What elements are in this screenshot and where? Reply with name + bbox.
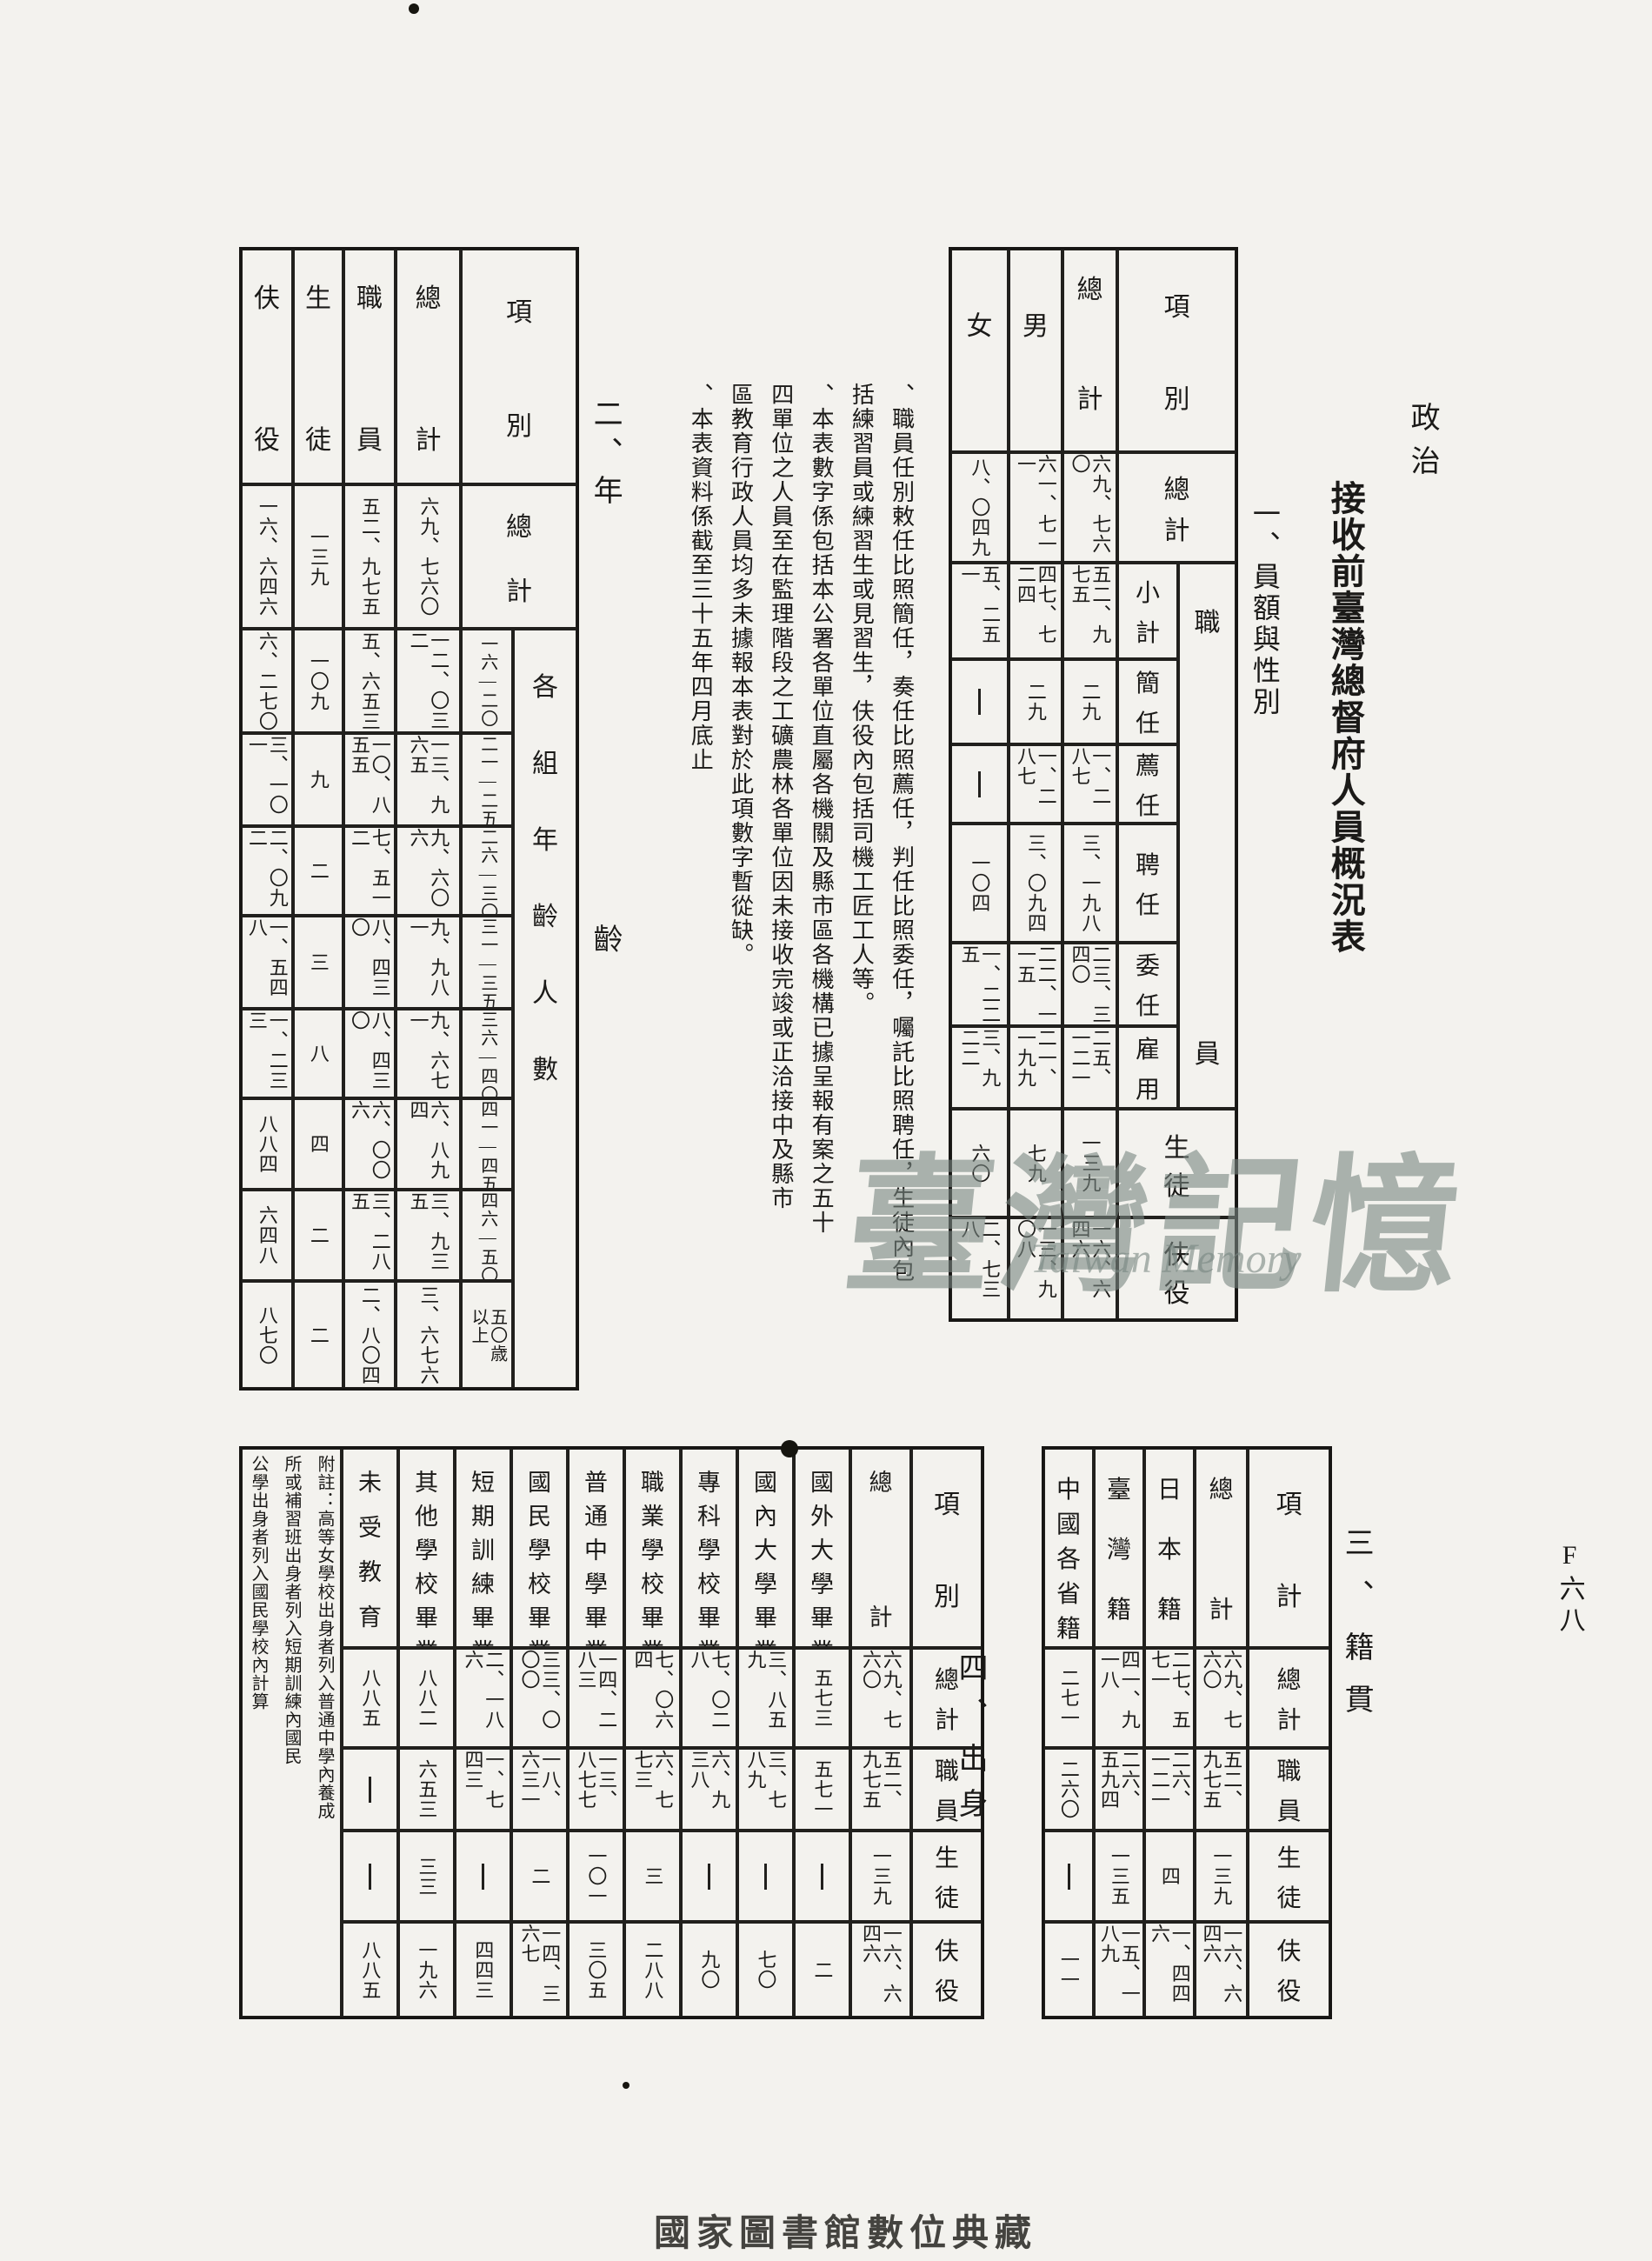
t1-col-header-label: 總計 bbox=[1077, 250, 1103, 450]
t1-rowheader-1-label: 小計 bbox=[1136, 564, 1160, 657]
t3-cell-r2-c2: 四 bbox=[1144, 1831, 1195, 1922]
t4-cell-r1-c7-value: 三、七八九 bbox=[745, 1750, 787, 1829]
t2-rowheader-5: 三六—四〇 bbox=[461, 1009, 513, 1098]
t4-col-header-label: 其他學校畢業 bbox=[415, 1450, 438, 1646]
t4-cell-r0-c5: 七、〇六四 bbox=[624, 1648, 681, 1748]
t1-col-header: 男 bbox=[1009, 249, 1062, 452]
t1-group-shokuin-label: 職員 bbox=[1195, 564, 1221, 1107]
t3-cell-r0-c1-value: 四一、九一八 bbox=[1098, 1650, 1140, 1746]
t2-cell-r7-c0: 六四八 bbox=[241, 1190, 293, 1281]
t3-cell-r2-c1: 一三五 bbox=[1094, 1831, 1144, 1922]
t4-cell-r3-c1-value: 一九六 bbox=[416, 1940, 437, 2000]
section-title-personnel: 一、員額與性別 bbox=[1249, 499, 1280, 718]
t2-col-header: 總計 bbox=[396, 249, 461, 484]
t2-cell-r4-c0: 一、五四八 bbox=[241, 916, 293, 1009]
t4-cell-r3-c6: 九〇 bbox=[681, 1922, 737, 2018]
t4-rowheader-0: 總計 bbox=[911, 1648, 983, 1748]
t4-rowheader-2: 生徒 bbox=[911, 1831, 983, 1922]
t1-cell-r3-c2: 一、二八七 bbox=[1062, 744, 1117, 824]
t3-cell-r2-c3: 一三九 bbox=[1195, 1831, 1248, 1922]
t1-cell-r4-c2-value: 三、一九八 bbox=[1080, 833, 1101, 933]
t3-cell-r2-c2-value: 四 bbox=[1159, 1866, 1180, 1886]
t4-cell-r3-c3-value: 一四、三六七 bbox=[519, 1924, 561, 2016]
t2-cell-r6-c2: 六、〇〇六 bbox=[343, 1098, 396, 1190]
t1-cell-r2-c1: 二九 bbox=[1009, 659, 1062, 744]
t3-cell-r0-c2: 二七、五七一 bbox=[1144, 1648, 1195, 1748]
t4-col-header-label: 職業學校畢業 bbox=[641, 1450, 664, 1646]
t1-cell-r6-c1: 二一、一九九 bbox=[1009, 1026, 1062, 1109]
t2-cell-r4-c3: 九、九八一 bbox=[396, 916, 461, 1009]
t2-cell-r0-c3-value: 六九、七六〇 bbox=[418, 497, 439, 617]
t2-cell-r3-c3: 九、六〇六 bbox=[396, 826, 461, 916]
t1-cell-r0-c0: 八、〇四九 bbox=[950, 452, 1009, 563]
t4-cell-r2-c4-value: 一〇一 bbox=[586, 1846, 607, 1906]
t4-cell-r2-c9-value: 一三九 bbox=[870, 1846, 891, 1906]
empty-value-dash bbox=[369, 1777, 371, 1803]
t3-rowheader-1: 職員 bbox=[1248, 1748, 1330, 1831]
t2-cell-r5-c3: 九、六七一 bbox=[396, 1009, 461, 1098]
t2-corner-xiangbie-label: 項別 bbox=[506, 250, 532, 483]
t2-cell-r8-c2-value: 二、八〇四 bbox=[359, 1285, 380, 1385]
empty-value-dash bbox=[708, 1864, 710, 1890]
page-title: 接收前臺灣總督府人員概況表 bbox=[1325, 480, 1364, 955]
t4-cell-r2-c0 bbox=[342, 1831, 398, 1922]
empty-value-dash bbox=[978, 689, 981, 715]
t4-cell-r1-c3: 一八、六三一 bbox=[511, 1748, 568, 1831]
t1-cell-r1-c2-value: 五二、九七五 bbox=[1069, 564, 1111, 657]
t2-rowheader-6-label: 四一—四五 bbox=[477, 1100, 496, 1188]
t4-cell-r0-c4-value: 一四、二八三 bbox=[576, 1650, 617, 1746]
t4-cell-r3-c2-value: 四四三 bbox=[473, 1940, 494, 2000]
t3-col-header-label: 臺灣籍 bbox=[1107, 1450, 1131, 1646]
t4-col-header: 國內大學畢業 bbox=[737, 1448, 794, 1648]
t3-cell-r1-c2: 二六、一二一 bbox=[1144, 1748, 1195, 1831]
t4-cell-r1-c8-value: 五七一 bbox=[812, 1759, 833, 1819]
footer-library-caption: 國家圖書館數位典藏 bbox=[654, 2204, 1037, 2257]
t4-col-header-label: 專科學校畢業 bbox=[697, 1450, 721, 1646]
t2-cell-r0-c0-value: 一六、六四六 bbox=[256, 497, 277, 617]
t4-col-header: 其他學校畢業 bbox=[398, 1448, 455, 1648]
t3-col-header-label: 日本籍 bbox=[1157, 1450, 1182, 1646]
t1-cell-r7-c2: 一三九 bbox=[1062, 1109, 1117, 1217]
t4-cell-r3-c9: 一六、六四六 bbox=[850, 1922, 911, 2018]
t4-col-header: 專科學校畢業 bbox=[681, 1448, 737, 1648]
t4-col-header-label: 國民學校畢業 bbox=[528, 1450, 551, 1646]
t3-col-header-label: 總計 bbox=[1209, 1450, 1233, 1646]
t3-cell-r3-c2-value: 一、四四六 bbox=[1149, 1924, 1190, 2016]
t1-cell-r5-c0: 一、二二五 bbox=[950, 943, 1009, 1026]
t3-cell-r1-c0-value: 二六〇 bbox=[1058, 1759, 1079, 1819]
t3-cell-r1-c1: 二六、五九四 bbox=[1094, 1748, 1144, 1831]
t2-cell-r1-c1-value: 一〇九 bbox=[308, 651, 329, 711]
t3-cell-r1-c3: 五二、九七五 bbox=[1195, 1748, 1248, 1831]
t4-cell-r0-c3-value: 三三、〇〇〇 bbox=[519, 1650, 561, 1746]
t4-note-column: 附註：高等女學校出身者列入普通中學內養成 所或補習班出身者列入短期訓練內國民 公… bbox=[241, 1448, 342, 2018]
t4-cell-r0-c1-value: 八八二 bbox=[416, 1668, 437, 1728]
empty-value-dash bbox=[1068, 1864, 1070, 1890]
t1-cell-r6-c2-value: 二五、一二一 bbox=[1069, 1028, 1111, 1107]
t4-col-header-label: 未受教育 bbox=[358, 1450, 382, 1646]
t3-cell-r2-c1-value: 一三五 bbox=[1109, 1846, 1129, 1906]
t2-rowheader-2-label: 二一—二五 bbox=[477, 735, 496, 824]
t2-cell-r3-c0-value: 二、〇九二 bbox=[246, 828, 288, 914]
t1-cell-r1-c1-value: 四七、七二四 bbox=[1015, 564, 1056, 657]
t2-rowheader-1-label: 一六—二〇 bbox=[477, 635, 496, 728]
t2-cell-r5-c2-value: 八、四三〇 bbox=[349, 1010, 390, 1097]
t1-cell-r2-c2-value: 二九 bbox=[1080, 682, 1101, 722]
t3-rowheader-3: 伕役 bbox=[1248, 1922, 1330, 2018]
t4-cell-r2-c9: 一三九 bbox=[850, 1831, 911, 1922]
t1-cell-r1-c0: 五、二五一 bbox=[950, 563, 1009, 659]
t2-corner-xiangbie: 項別 bbox=[461, 249, 577, 484]
t1-cell-r7-c2-value: 一三九 bbox=[1080, 1133, 1101, 1193]
t2-cell-r7-c3-value: 三、九三五 bbox=[408, 1191, 450, 1279]
t4-rowheader-2-label: 生徒 bbox=[935, 1832, 959, 1920]
t2-cell-r8-c0: 八七〇 bbox=[241, 1281, 293, 1389]
t2-cell-r8-c2: 二、八〇四 bbox=[343, 1281, 396, 1389]
t1-cell-r5-c1-value: 二二、一一五 bbox=[1015, 944, 1056, 1024]
t2-cell-r2-c0: 三、一〇一 bbox=[241, 733, 293, 826]
t4-cell-r0-c1: 八八二 bbox=[398, 1648, 455, 1748]
t4-cell-r1-c8: 五七一 bbox=[794, 1748, 850, 1831]
t2-rowheader-6: 四一—四五 bbox=[461, 1098, 513, 1190]
t2-col-header: 生徒 bbox=[293, 249, 343, 484]
t1-cell-r5-c2: 二三、三四〇 bbox=[1062, 943, 1117, 1026]
t2-cell-r1-c0-value: 六、二七〇 bbox=[256, 631, 277, 731]
t2-rowheader-total-label: 總計 bbox=[506, 486, 532, 627]
t1-cell-r0-c0-value: 八、〇四九 bbox=[969, 457, 990, 557]
t4-cell-r3-c5-value: 二八八 bbox=[643, 1940, 663, 2000]
t2-cell-r2-c1: 九 bbox=[293, 733, 343, 826]
t3-rowheader-3-label: 伕役 bbox=[1276, 1924, 1301, 2016]
t2-cell-r3-c1-value: 二 bbox=[308, 861, 329, 881]
t2-cell-r8-c3-value: 三、六七六 bbox=[418, 1285, 439, 1385]
t1-col-header: 女 bbox=[950, 249, 1009, 452]
t3-col-header-label: 中國各省籍 bbox=[1056, 1450, 1081, 1646]
t4-col-header-label: 短期訓練畢業 bbox=[471, 1450, 495, 1646]
t2-cell-r6-c0-value: 八八四 bbox=[256, 1114, 277, 1174]
empty-value-dash bbox=[482, 1864, 484, 1890]
t4-note-text: 附註：高等女學校出身者列入普通中學內養成 所或補習班出身者列入短期訓練內國民 公… bbox=[242, 1450, 341, 1820]
t4-corner-xiangbie-label: 項別 bbox=[934, 1450, 960, 1646]
t4-col-header: 未受教育 bbox=[342, 1448, 398, 1648]
t2-cell-r4-c2-value: 八、四三〇 bbox=[349, 917, 390, 1007]
t2-cell-r4-c0-value: 一、五四八 bbox=[246, 917, 288, 1007]
t2-col-header: 伕役 bbox=[241, 249, 293, 484]
t2-rowheader-7-label: 四六—五〇 bbox=[477, 1191, 496, 1279]
t4-col-header: 國民學校畢業 bbox=[511, 1448, 568, 1648]
t1-cell-r6-c0: 三、九二二 bbox=[950, 1026, 1009, 1109]
t1-cell-r4-c0: 一〇四 bbox=[950, 824, 1009, 943]
t2-cell-r3-c3-value: 九、六〇六 bbox=[408, 828, 450, 914]
t3-cell-r3-c0: 一一 bbox=[1043, 1922, 1094, 2018]
t4-cell-r3-c7: 七〇 bbox=[737, 1922, 794, 2018]
t4-cell-r0-c6-value: 七、〇二八 bbox=[689, 1650, 730, 1746]
t3-cell-r1-c1-value: 二六、五九四 bbox=[1098, 1750, 1140, 1829]
t4-cell-r0-c2-value: 二、一八六 bbox=[463, 1650, 504, 1746]
t4-cell-r3-c0-value: 八八五 bbox=[360, 1940, 381, 2000]
t1-cell-r1-c0-value: 五、二五一 bbox=[959, 564, 1001, 657]
notes-block: 、職員任別敕任比照簡任，奏任比照薦任，判任比照委任，囑託比照聘任，生徒內包 括練… bbox=[680, 383, 922, 1165]
t1-rowheader-5-label: 委任 bbox=[1136, 944, 1160, 1024]
t2-cell-r4-c2: 八、四三〇 bbox=[343, 916, 396, 1009]
t3-cell-r3-c0-value: 一一 bbox=[1058, 1950, 1079, 1990]
t2-cell-r2-c3: 一三、九六五 bbox=[396, 733, 461, 826]
t1-cell-r4-c2: 三、一九八 bbox=[1062, 824, 1117, 943]
t2-cell-r4-c1: 三 bbox=[293, 916, 343, 1009]
t1-rowheader-1: 小計 bbox=[1117, 563, 1178, 659]
t4-cell-r0-c7-value: 三、八五九 bbox=[745, 1650, 787, 1746]
t4-col-header-label: 普通中學畢業 bbox=[584, 1450, 608, 1646]
t4-cell-r1-c6: 六、九三八 bbox=[681, 1748, 737, 1831]
t4-cell-r2-c8 bbox=[794, 1831, 850, 1922]
t4-cell-r0-c5-value: 七、〇六四 bbox=[632, 1650, 674, 1746]
section-title-age-part2: 齡 bbox=[588, 924, 621, 953]
section-title-origin: 三、籍貫 bbox=[1339, 1527, 1372, 1736]
t2-cell-r4-c3-value: 九、九八一 bbox=[408, 917, 450, 1007]
t4-cell-r3-c4: 三〇五 bbox=[568, 1922, 624, 2018]
t3-col-header: 臺灣籍 bbox=[1094, 1448, 1144, 1648]
t2-cell-r5-c1-value: 八 bbox=[308, 1044, 329, 1064]
t1-cell-r5-c1: 二二、一一五 bbox=[1009, 943, 1062, 1026]
t2-cell-r1-c1: 一〇九 bbox=[293, 629, 343, 733]
t1-rowheader-3-label: 薦任 bbox=[1136, 746, 1160, 822]
t1-cell-r3-c2-value: 一、二八七 bbox=[1069, 746, 1111, 822]
t2-cell-r0-c2: 五二、九七五 bbox=[343, 484, 396, 629]
t1-rowheader-seito-label: 生徒 bbox=[1164, 1110, 1190, 1216]
t3-cell-r3-c3: 一六、六四六 bbox=[1195, 1922, 1248, 2018]
t4-cell-r3-c4-value: 三〇五 bbox=[586, 1940, 607, 2000]
t4-cell-r3-c5: 二八八 bbox=[624, 1922, 681, 2018]
t1-cell-r0-c2: 六九、七六〇 bbox=[1062, 452, 1117, 563]
t3-cell-r3-c1: 一五、一八九 bbox=[1094, 1922, 1144, 2018]
t4-cell-r2-c3-value: 二 bbox=[530, 1866, 550, 1886]
t4-cell-r3-c3: 一四、三六七 bbox=[511, 1922, 568, 2018]
t4-cell-r3-c6-value: 九〇 bbox=[699, 1950, 720, 1990]
t4-cell-r1-c4-value: 一三、八七七 bbox=[576, 1750, 617, 1829]
t4-cell-r1-c2: 一、七四三 bbox=[455, 1748, 511, 1831]
t4-cell-r1-c1: 六五三 bbox=[398, 1748, 455, 1831]
t1-cell-r8-c2: 一六、六四六 bbox=[1062, 1217, 1117, 1320]
t1-cell-r0-c1: 六一、七一一 bbox=[1009, 452, 1062, 563]
t2-rowheader-4: 三一—三五 bbox=[461, 916, 513, 1009]
t1-col-header: 總計 bbox=[1062, 249, 1117, 452]
t4-rowheader-3: 伕役 bbox=[911, 1922, 983, 2018]
t2-cell-r8-c3: 三、六七六 bbox=[396, 1281, 461, 1389]
t1-rowheader-2-label: 簡任 bbox=[1136, 661, 1160, 743]
t1-cell-r2-c0 bbox=[950, 659, 1009, 744]
t2-cell-r2-c3-value: 一三、九六五 bbox=[408, 735, 450, 824]
t1-rowheader-2: 簡任 bbox=[1117, 659, 1178, 744]
t1-cell-r5-c0-value: 一、二二五 bbox=[959, 944, 1001, 1024]
t2-cell-r1-c3: 一二、〇三二 bbox=[396, 629, 461, 733]
t2-cell-r0-c2-value: 五二、九七五 bbox=[359, 497, 380, 617]
t2-rowheader-8-label: 五〇歳 以上 bbox=[468, 1308, 505, 1363]
t4-rowheader-1: 職員 bbox=[911, 1748, 983, 1831]
t1-cell-r7-c0-value: 六〇 bbox=[969, 1144, 990, 1184]
t2-cell-r3-c1: 二 bbox=[293, 826, 343, 916]
t3-cell-r3-c2: 一、四四六 bbox=[1144, 1922, 1195, 2018]
scan-artifact-dot bbox=[623, 2082, 629, 2089]
t3-cell-r3-c3-value: 一六、六四六 bbox=[1201, 1924, 1242, 2016]
t1-cell-r8-c1-value: 一三、九〇八 bbox=[1015, 1219, 1056, 1318]
category-label: 政治 bbox=[1405, 402, 1438, 489]
t1-cell-r3-c1: 一、二八七 bbox=[1009, 744, 1062, 824]
t4-cell-r0-c8-value: 五七三 bbox=[812, 1668, 833, 1728]
t1-rowheader-total: 總計 bbox=[1117, 452, 1236, 563]
t2-cell-r6-c3: 六、八九四 bbox=[396, 1098, 461, 1190]
t3-cell-r1-c2-value: 二六、一二一 bbox=[1149, 1750, 1190, 1829]
empty-value-dash bbox=[369, 1864, 371, 1890]
t1-cell-r2-c2: 二九 bbox=[1062, 659, 1117, 744]
t1-cell-r8-c2-value: 一六、六四六 bbox=[1069, 1219, 1111, 1318]
t2-cell-r1-c0: 六、二七〇 bbox=[241, 629, 293, 733]
t4-cell-r0-c0: 八八五 bbox=[342, 1648, 398, 1748]
t2-cell-r7-c2: 三、二八五 bbox=[343, 1190, 396, 1281]
t2-cell-r1-c2-value: 五、六五三 bbox=[359, 631, 380, 731]
t2-cell-r4-c1-value: 三 bbox=[308, 952, 329, 972]
scan-artifact-dot bbox=[781, 1440, 798, 1457]
t4-cell-r3-c0: 八八五 bbox=[342, 1922, 398, 2018]
t3-cell-r0-c3-value: 六九、七六〇 bbox=[1201, 1650, 1242, 1746]
t2-cell-r7-c2-value: 三、二八五 bbox=[349, 1191, 390, 1279]
t2-group-agegroups-label: 各組年齡人數 bbox=[532, 630, 558, 1387]
t1-col-header-label: 男 bbox=[1023, 250, 1049, 450]
t2-cell-r7-c3: 三、九三五 bbox=[396, 1190, 461, 1281]
t1-cell-r7-c1-value: 七九 bbox=[1025, 1144, 1046, 1184]
scanned-document-page: 政治 接收前臺灣總督府人員概況表 一、員額與性別 二、年 齡 三、籍貫 四、出身… bbox=[0, 0, 1652, 2261]
t2-rowheader-2: 二一—二五 bbox=[461, 733, 513, 826]
t2-cell-r8-c1-value: 二 bbox=[308, 1325, 329, 1345]
t1-cell-r8-c0-value: 二、七三八 bbox=[959, 1219, 1001, 1318]
t4-col-header: 職業學校畢業 bbox=[624, 1448, 681, 1648]
t1-cell-r3-c1-value: 一、二八七 bbox=[1015, 746, 1056, 822]
t3-col-header: 中國各省籍 bbox=[1043, 1448, 1094, 1648]
t3-rowheader-0: 總計 bbox=[1248, 1648, 1330, 1748]
t1-cell-r8-c1: 一三、九〇八 bbox=[1009, 1217, 1062, 1320]
section-title-age-part1: 二、年 bbox=[588, 398, 621, 513]
t3-cell-r1-c3-value: 五二、九七五 bbox=[1201, 1750, 1242, 1829]
t1-rowheader-3: 薦任 bbox=[1117, 744, 1178, 824]
t4-cell-r3-c2: 四四三 bbox=[455, 1922, 511, 2018]
t2-cell-r6-c3-value: 六、八九四 bbox=[408, 1100, 450, 1188]
t3-rowheader-0-label: 總計 bbox=[1276, 1650, 1301, 1746]
t1-cell-r7-c0: 六〇 bbox=[950, 1109, 1009, 1217]
scan-artifact-dot bbox=[409, 3, 419, 14]
t2-cell-r5-c0: 一、二三三 bbox=[241, 1009, 293, 1098]
t1-cell-r6-c2: 二五、一二一 bbox=[1062, 1026, 1117, 1109]
t3-rowheader-2-label: 生徒 bbox=[1276, 1832, 1301, 1920]
t3-cell-r3-c1-value: 一五、一八九 bbox=[1098, 1924, 1140, 2016]
t1-rowheader-fueki: 伕役 bbox=[1117, 1217, 1236, 1320]
t1-rowheader-fueki-label: 伕役 bbox=[1164, 1219, 1190, 1318]
t1-cell-r4-c1-value: 三、〇九四 bbox=[1025, 833, 1046, 933]
t2-cell-r6-c1-value: 四 bbox=[308, 1134, 329, 1154]
t3-rowheader-2: 生徒 bbox=[1248, 1831, 1330, 1922]
t4-cell-r1-c3-value: 一八、六三一 bbox=[519, 1750, 561, 1829]
t3-col-header: 日本籍 bbox=[1144, 1448, 1195, 1648]
t4-cell-r2-c7 bbox=[737, 1831, 794, 1922]
t2-rowheader-3-label: 二六—三〇 bbox=[477, 828, 496, 914]
t4-col-header-label: 國內大學畢業 bbox=[754, 1450, 777, 1646]
t1-cell-r8-c0: 二、七三八 bbox=[950, 1217, 1009, 1320]
t1-rowheader-total-label: 總計 bbox=[1164, 454, 1190, 561]
t2-cell-r6-c1: 四 bbox=[293, 1098, 343, 1190]
t2-cell-r1-c3-value: 一二、〇三二 bbox=[408, 630, 450, 731]
t1-cell-r5-c2-value: 二三、三四〇 bbox=[1069, 944, 1111, 1024]
t4-cell-r1-c0 bbox=[342, 1748, 398, 1831]
t4-cell-r1-c4: 一三、八七七 bbox=[568, 1748, 624, 1831]
t1-cell-r6-c1-value: 二一、一九九 bbox=[1015, 1028, 1056, 1107]
t2-cell-r5-c3-value: 九、六七一 bbox=[408, 1010, 450, 1097]
t4-cell-r1-c5-value: 六、七七三 bbox=[632, 1750, 674, 1829]
t1-rowheader-4: 聘任 bbox=[1117, 824, 1178, 943]
t1-cell-r7-c1: 七九 bbox=[1009, 1109, 1062, 1217]
t1-rowheader-5: 委任 bbox=[1117, 943, 1178, 1026]
t2-cell-r7-c1-value: 二 bbox=[308, 1225, 329, 1245]
t4-cell-r3-c9-value: 一六、六四六 bbox=[860, 1924, 902, 2016]
t2-cell-r0-c1: 一三九 bbox=[293, 484, 343, 629]
t4-cell-r2-c6 bbox=[681, 1831, 737, 1922]
t4-cell-r2-c5: 三 bbox=[624, 1831, 681, 1922]
t1-rowheader-seito: 生徒 bbox=[1117, 1109, 1236, 1217]
t4-cell-r0-c9: 六九、七六〇 bbox=[850, 1648, 911, 1748]
t1-cell-r4-c1: 三、〇九四 bbox=[1009, 824, 1062, 943]
t4-col-header: 普通中學畢業 bbox=[568, 1448, 624, 1648]
t1-cell-r3-c0 bbox=[950, 744, 1009, 824]
empty-value-dash bbox=[764, 1864, 767, 1890]
t2-cell-r2-c0-value: 三、一〇一 bbox=[246, 735, 288, 824]
t4-cell-r2-c5-value: 三 bbox=[643, 1866, 663, 1886]
t2-cell-r1-c2: 五、六五三 bbox=[343, 629, 396, 733]
t4-cell-r1-c5: 六、七七三 bbox=[624, 1748, 681, 1831]
t2-cell-r2-c2: 一〇、八五五 bbox=[343, 733, 396, 826]
t2-cell-r0-c0: 一六、六四六 bbox=[241, 484, 293, 629]
t1-corner-xiangbie: 項別 bbox=[1117, 249, 1236, 452]
t3-cell-r2-c0 bbox=[1043, 1831, 1094, 1922]
t4-cell-r1-c1-value: 六五三 bbox=[416, 1759, 437, 1819]
t4-cell-r3-c1: 一九六 bbox=[398, 1922, 455, 2018]
t1-rowheader-6-label: 雇用 bbox=[1136, 1028, 1160, 1107]
t4-corner-xiangbie: 項別 bbox=[911, 1448, 983, 1648]
t3-cell-r2-c3-value: 一三九 bbox=[1211, 1846, 1232, 1906]
t1-rowheader-4-label: 聘任 bbox=[1136, 825, 1160, 941]
t4-cell-r2-c4: 一〇一 bbox=[568, 1831, 624, 1922]
t4-cell-r0-c0-value: 八八五 bbox=[360, 1668, 381, 1728]
t1-cell-r1-c2: 五二、九七五 bbox=[1062, 563, 1117, 659]
t3-cell-r0-c1: 四一、九一八 bbox=[1094, 1648, 1144, 1748]
t4-cell-r0-c4: 一四、二八三 bbox=[568, 1648, 624, 1748]
page-number: F六八 bbox=[1555, 1541, 1584, 1637]
t2-cell-r3-c2-value: 七、五一二 bbox=[349, 828, 390, 914]
t4-cell-r1-c7: 三、七八九 bbox=[737, 1748, 794, 1831]
t1-col-header-label: 女 bbox=[967, 250, 993, 450]
t2-rowheader-1: 一六—二〇 bbox=[461, 629, 513, 733]
t3-corner-xiangbie: 項計 bbox=[1248, 1448, 1330, 1648]
t2-cell-r6-c2-value: 六、〇〇六 bbox=[349, 1100, 390, 1188]
t2-cell-r5-c0-value: 一、二三三 bbox=[246, 1010, 288, 1097]
t2-cell-r0-c1-value: 一三九 bbox=[308, 527, 329, 587]
t2-col-header-label: 伕役 bbox=[254, 250, 280, 483]
t2-col-header-label: 生徒 bbox=[305, 250, 331, 483]
t4-cell-r0-c2: 二、一八六 bbox=[455, 1648, 511, 1748]
t3-corner-xiangbie-label: 項計 bbox=[1276, 1450, 1302, 1646]
t4-rowheader-0-label: 總計 bbox=[935, 1650, 959, 1746]
t2-cell-r2-c1-value: 九 bbox=[308, 770, 329, 790]
t2-rowheader-7: 四六—五〇 bbox=[461, 1190, 513, 1281]
t4-cell-r0-c6: 七、〇二八 bbox=[681, 1648, 737, 1748]
t4-cell-r0-c9-value: 六九、七六〇 bbox=[860, 1650, 902, 1746]
